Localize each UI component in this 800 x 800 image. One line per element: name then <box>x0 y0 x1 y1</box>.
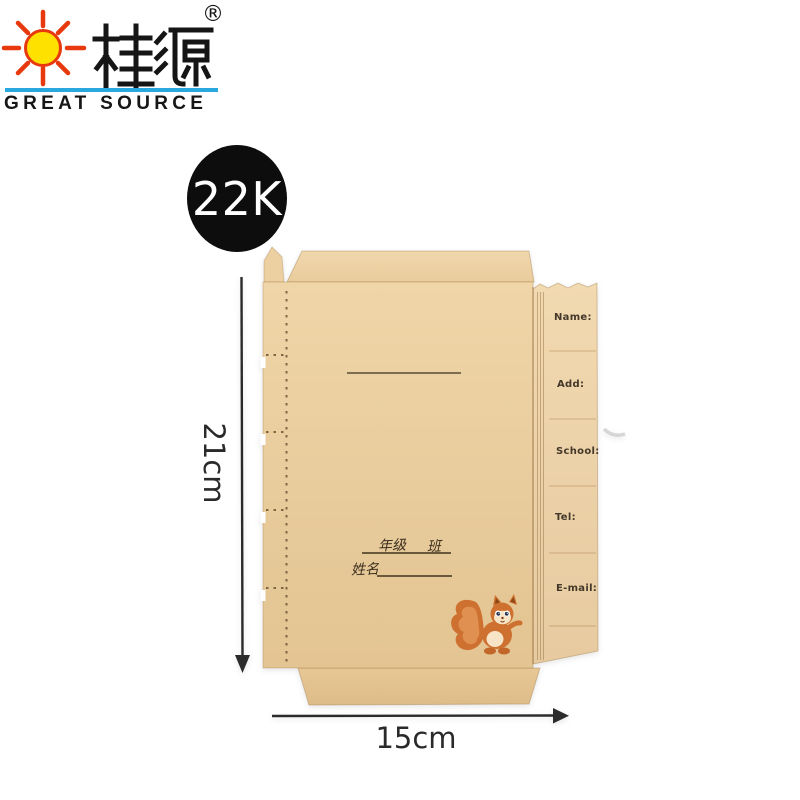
arrow-right-icon <box>553 708 569 724</box>
cover-bottom-flap <box>298 668 540 705</box>
grade-label: 年级 <box>378 535 407 556</box>
height-dimension-label: 21cm <box>197 421 231 505</box>
cover-top-flap <box>287 251 534 282</box>
width-dimension-label: 15cm <box>374 721 458 755</box>
field-label-add: Add: <box>557 379 584 390</box>
field-label-tel: Tel: <box>555 512 576 523</box>
name-label: 姓名 <box>351 559 380 580</box>
field-label-email: E-mail: <box>556 583 597 594</box>
product-image: ® GREAT SOURCE 22K <box>0 0 800 800</box>
arrow-down-icon <box>235 655 250 673</box>
kraft-cover-illustration <box>0 0 800 800</box>
height-arrow <box>235 277 250 673</box>
cover-right-flap <box>533 283 598 664</box>
class-label: 班 <box>427 536 442 556</box>
field-label-name: Name: <box>554 312 592 323</box>
field-label-school: School: <box>556 446 600 457</box>
paper-tear-mark <box>604 429 625 435</box>
cover-top-left-tab <box>264 247 284 282</box>
